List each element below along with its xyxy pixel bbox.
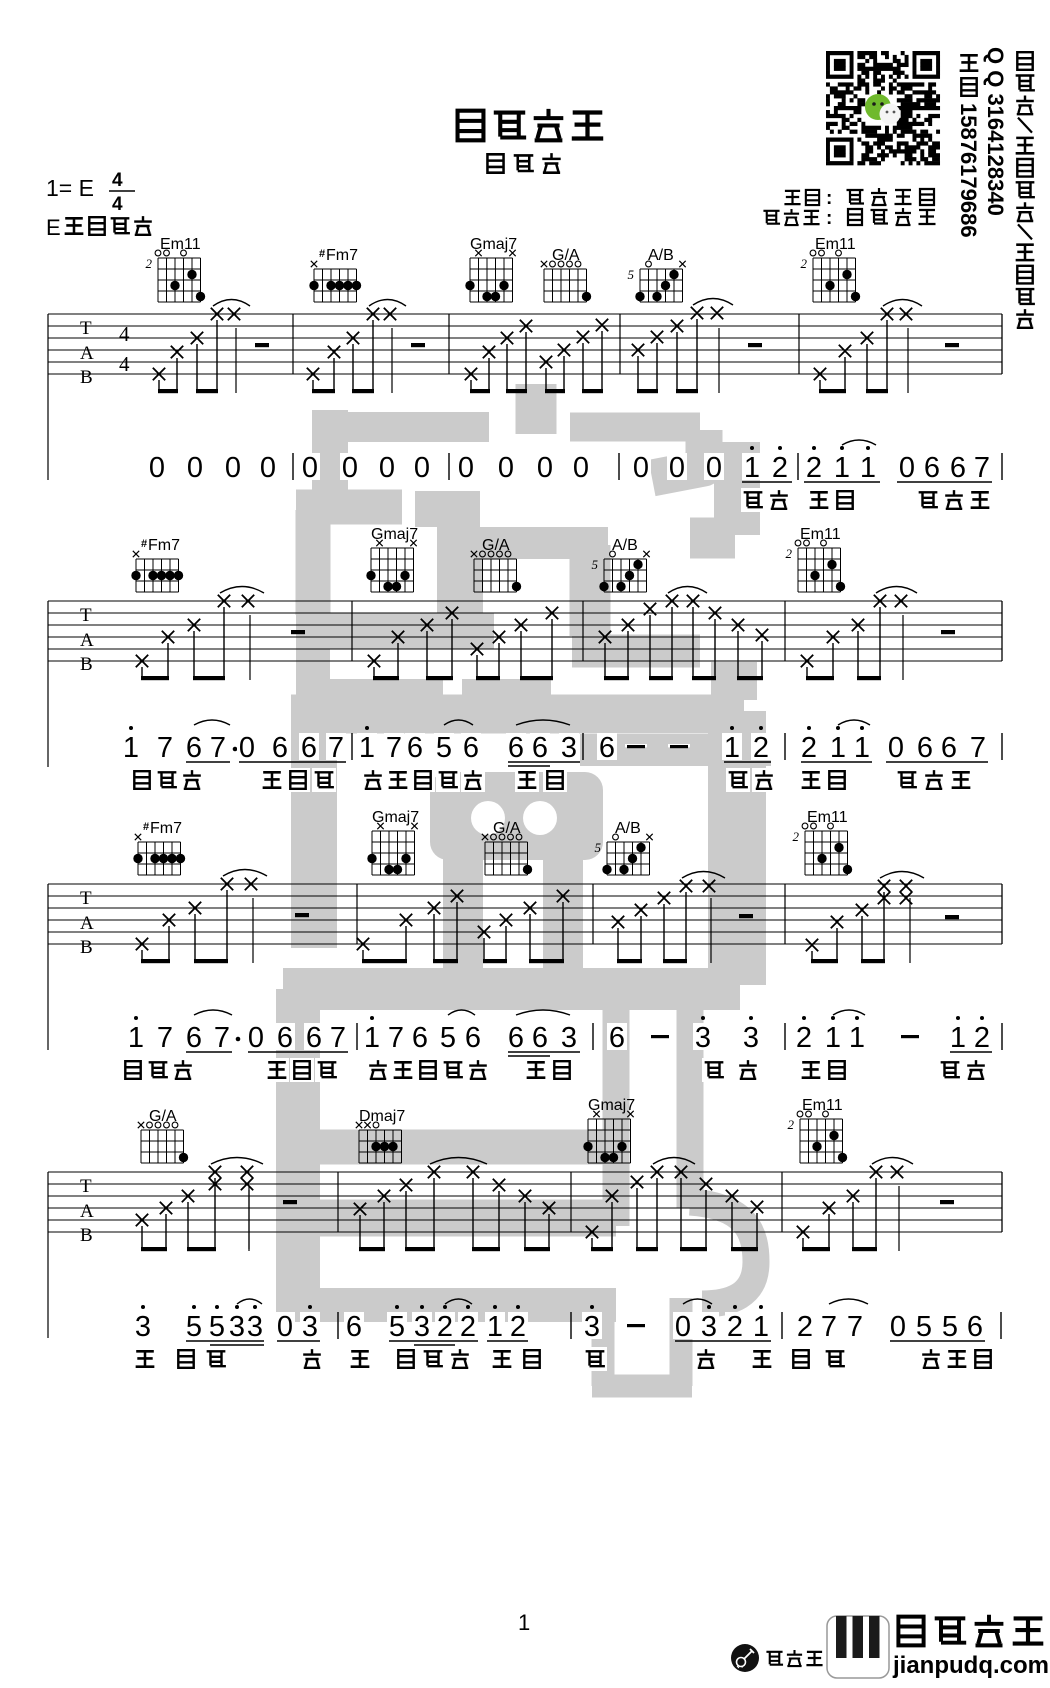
svg-text:E: E	[46, 215, 61, 240]
svg-text:6: 6	[272, 732, 288, 764]
svg-text:6: 6	[609, 1022, 625, 1054]
svg-text:6: 6	[532, 1022, 548, 1054]
svg-text:2: 2	[797, 1311, 813, 1343]
svg-text:6: 6	[950, 452, 966, 484]
svg-text:7: 7	[386, 732, 402, 764]
svg-text:7: 7	[157, 1022, 173, 1054]
svg-text:7: 7	[970, 732, 986, 764]
svg-text:T: T	[80, 605, 92, 626]
svg-text:4: 4	[119, 322, 130, 346]
svg-text:5: 5	[628, 267, 635, 282]
svg-text:2: 2	[801, 732, 817, 764]
svg-text:6: 6	[301, 732, 317, 764]
svg-text:0: 0	[890, 1311, 906, 1343]
svg-text:6: 6	[463, 732, 479, 764]
svg-text:Fm7: Fm7	[148, 537, 180, 554]
svg-text:0: 0	[669, 452, 685, 484]
svg-text:7: 7	[847, 1311, 863, 1343]
svg-text:2: 2	[796, 1022, 812, 1054]
svg-text:7: 7	[330, 1022, 346, 1054]
svg-text:6: 6	[277, 1022, 293, 1054]
svg-text:4: 4	[112, 170, 123, 191]
svg-text:6: 6	[532, 732, 548, 764]
svg-text:5: 5	[186, 1311, 202, 1343]
svg-text:3: 3	[302, 1311, 318, 1343]
svg-text:0: 0	[675, 1311, 691, 1343]
svg-text:6: 6	[465, 1022, 481, 1054]
svg-text:Em11: Em11	[160, 236, 201, 253]
svg-text:0: 0	[187, 452, 203, 484]
svg-text:6: 6	[967, 1311, 983, 1343]
svg-text:1: 1	[825, 1022, 841, 1054]
svg-text:0: 0	[302, 452, 318, 484]
svg-text:Fm7: Fm7	[150, 820, 182, 837]
svg-text:G/A: G/A	[493, 820, 521, 837]
svg-text:0: 0	[458, 452, 474, 484]
svg-text:6: 6	[186, 1022, 202, 1054]
svg-text:0: 0	[379, 452, 395, 484]
svg-text:6: 6	[941, 732, 957, 764]
svg-text:7: 7	[821, 1311, 837, 1343]
svg-text:Em11: Em11	[800, 526, 841, 543]
svg-text:6: 6	[186, 732, 202, 764]
svg-text:jianpudq.com: jianpudq.com	[892, 1652, 1049, 1679]
svg-text:5: 5	[440, 1022, 456, 1054]
svg-text:2: 2	[510, 1311, 526, 1343]
svg-text:1: 1	[487, 1311, 503, 1343]
svg-text:2: 2	[727, 1311, 743, 1343]
svg-text:1: 1	[744, 452, 760, 484]
svg-text:1: 1	[753, 1311, 769, 1343]
svg-text:1: 1	[830, 732, 846, 764]
svg-text:#: #	[141, 538, 147, 550]
svg-text:7: 7	[974, 452, 990, 484]
svg-text:6: 6	[412, 1022, 428, 1054]
svg-text:Fm7: Fm7	[326, 247, 358, 264]
svg-text:B: B	[80, 1225, 93, 1246]
svg-text:Gmaj7: Gmaj7	[588, 1097, 635, 1114]
svg-text:B: B	[80, 367, 93, 388]
svg-text:2: 2	[437, 1311, 453, 1343]
svg-text:7: 7	[210, 732, 226, 764]
svg-text:0: 0	[260, 452, 276, 484]
svg-text:15876179686: 15876179686	[956, 103, 981, 238]
svg-text:T: T	[80, 1176, 92, 1197]
svg-text:0: 0	[149, 452, 165, 484]
svg-text:7: 7	[214, 1022, 230, 1054]
svg-text:B: B	[80, 654, 93, 675]
svg-text:1: 1	[123, 732, 139, 764]
svg-text:3: 3	[229, 1311, 245, 1343]
svg-text:6: 6	[924, 452, 940, 484]
svg-text:3: 3	[701, 1311, 717, 1343]
svg-text:4: 4	[119, 352, 130, 376]
svg-text:5: 5	[436, 732, 452, 764]
svg-text:A: A	[80, 913, 94, 934]
svg-text:0: 0	[239, 732, 255, 764]
svg-text:1: 1	[724, 732, 740, 764]
svg-text:2: 2	[793, 829, 800, 844]
svg-text:2: 2	[146, 256, 153, 271]
svg-text:1: 1	[854, 732, 870, 764]
svg-text:6: 6	[508, 1022, 524, 1054]
svg-text:0: 0	[706, 452, 722, 484]
svg-text:3: 3	[584, 1311, 600, 1343]
svg-text:3: 3	[695, 1022, 711, 1054]
svg-text:5: 5	[592, 557, 599, 572]
svg-text:6: 6	[407, 732, 423, 764]
svg-text:0: 0	[342, 452, 358, 484]
svg-text:5: 5	[916, 1311, 932, 1343]
svg-text:5: 5	[389, 1311, 405, 1343]
svg-text:5: 5	[595, 840, 602, 855]
svg-text:1: 1	[950, 1022, 966, 1054]
svg-text:T: T	[80, 888, 92, 909]
svg-text:A/B: A/B	[615, 820, 641, 837]
svg-text:6: 6	[508, 732, 524, 764]
svg-text:0: 0	[888, 732, 904, 764]
svg-text:1: 1	[359, 732, 375, 764]
svg-text:0: 0	[414, 452, 430, 484]
svg-text:Gmaj7: Gmaj7	[371, 526, 418, 543]
svg-text:1: 1	[834, 452, 850, 484]
svg-text:2: 2	[460, 1311, 476, 1343]
svg-text:A/B: A/B	[612, 537, 638, 554]
svg-text:0: 0	[277, 1311, 293, 1343]
svg-text:Dmaj7: Dmaj7	[359, 1108, 405, 1125]
svg-text:3: 3	[247, 1311, 263, 1343]
svg-text:T: T	[80, 318, 92, 339]
svg-text:2: 2	[806, 452, 822, 484]
svg-text:1: 1	[364, 1022, 380, 1054]
svg-text:7: 7	[157, 732, 173, 764]
svg-text::: :	[826, 208, 832, 229]
svg-text:6: 6	[599, 732, 615, 764]
svg-text:2: 2	[974, 1022, 990, 1054]
svg-text:3: 3	[743, 1022, 759, 1054]
svg-text:Q Q 3164128340: Q Q 3164128340	[983, 47, 1008, 216]
svg-text:7: 7	[328, 732, 344, 764]
svg-text:1: 1	[128, 1022, 144, 1054]
svg-text:2: 2	[801, 256, 808, 271]
svg-text:0: 0	[537, 452, 553, 484]
svg-text:5: 5	[209, 1311, 225, 1343]
svg-text:0: 0	[225, 452, 241, 484]
svg-text:5: 5	[942, 1311, 958, 1343]
svg-text:0: 0	[248, 1022, 264, 1054]
svg-text:0: 0	[573, 452, 589, 484]
svg-text:6: 6	[306, 1022, 322, 1054]
svg-text:2: 2	[788, 1117, 795, 1132]
svg-text:1: 1	[518, 1610, 530, 1635]
svg-text:A: A	[80, 343, 94, 364]
svg-text:0: 0	[633, 452, 649, 484]
svg-text:1= E: 1= E	[46, 175, 94, 201]
svg-text:2: 2	[772, 452, 788, 484]
svg-text:2: 2	[786, 546, 793, 561]
svg-text:4: 4	[112, 194, 123, 215]
svg-text:Em11: Em11	[802, 1097, 843, 1114]
svg-text:Gmaj7: Gmaj7	[470, 236, 517, 253]
svg-text:1: 1	[860, 452, 876, 484]
svg-text:3: 3	[561, 732, 577, 764]
svg-text:0: 0	[899, 452, 915, 484]
svg-text:Gmaj7: Gmaj7	[372, 809, 419, 826]
svg-text:#: #	[319, 248, 325, 260]
svg-text:1: 1	[849, 1022, 865, 1054]
svg-text:Em11: Em11	[807, 809, 848, 826]
svg-text:G/A: G/A	[149, 1108, 177, 1125]
svg-text:A: A	[80, 1201, 94, 1222]
svg-text::: :	[826, 188, 832, 209]
svg-text:7: 7	[388, 1022, 404, 1054]
svg-text:G/A: G/A	[552, 247, 580, 264]
svg-text:G/A: G/A	[482, 537, 510, 554]
svg-text:2: 2	[753, 732, 769, 764]
svg-text:3: 3	[135, 1311, 151, 1343]
svg-text:3: 3	[561, 1022, 577, 1054]
svg-text:A/B: A/B	[648, 247, 674, 264]
svg-text:A: A	[80, 630, 94, 651]
svg-text:0: 0	[498, 452, 514, 484]
svg-text:B: B	[80, 937, 93, 958]
svg-text:3: 3	[414, 1311, 430, 1343]
svg-text:6: 6	[917, 732, 933, 764]
svg-text:#: #	[143, 821, 149, 833]
svg-text:6: 6	[346, 1311, 362, 1343]
svg-text:Em11: Em11	[815, 236, 856, 253]
